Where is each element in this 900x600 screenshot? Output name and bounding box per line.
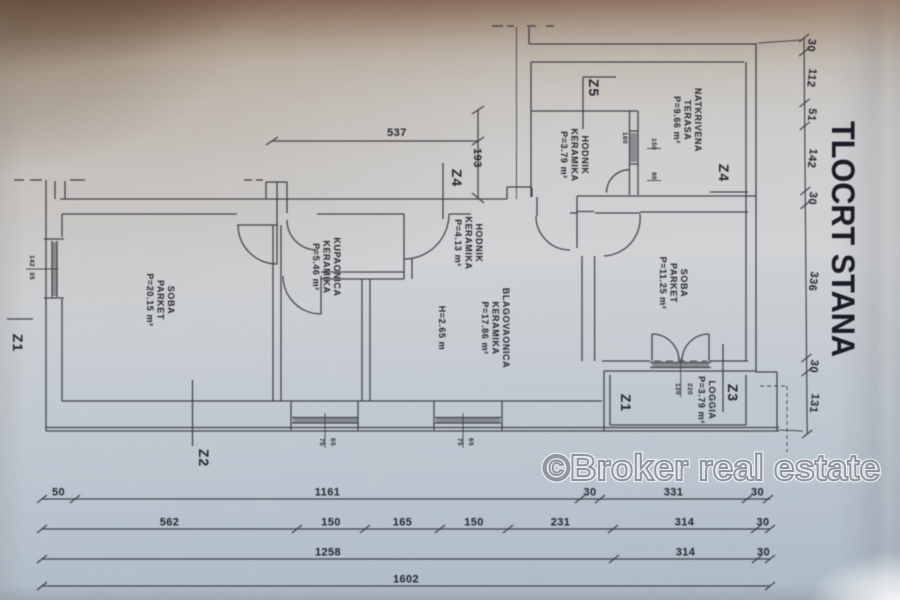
svg-text:Z1: Z1 xyxy=(10,334,26,352)
svg-text:KUPAONICA: KUPAONICA xyxy=(332,237,342,296)
svg-text:Z4: Z4 xyxy=(716,164,732,182)
svg-text:P=20.15 m²: P=20.15 m² xyxy=(145,273,155,326)
svg-text:75: 75 xyxy=(318,438,325,446)
svg-text:193: 193 xyxy=(471,148,483,168)
svg-text:Z3: Z3 xyxy=(725,384,741,402)
svg-text:165: 165 xyxy=(393,517,413,529)
svg-text:65: 65 xyxy=(467,438,474,446)
svg-text:TERASA: TERASA xyxy=(683,100,693,141)
svg-text:231: 231 xyxy=(551,517,571,529)
svg-text:65: 65 xyxy=(329,438,336,446)
svg-text:336: 336 xyxy=(806,271,820,292)
svg-text:51: 51 xyxy=(805,108,819,123)
svg-text:SOBA: SOBA xyxy=(679,269,689,297)
svg-text:120: 120 xyxy=(674,383,681,395)
svg-text:142: 142 xyxy=(805,148,819,169)
svg-text:TLOCRT STANA: TLOCRT STANA xyxy=(825,121,861,357)
svg-text:30: 30 xyxy=(751,487,764,499)
svg-text:Z2: Z2 xyxy=(196,449,212,467)
svg-text:P=5.46 m²: P=5.46 m² xyxy=(311,243,321,291)
svg-text:1602: 1602 xyxy=(393,574,419,586)
svg-text:P=3.79 m²: P=3.79 m² xyxy=(559,131,569,179)
svg-text:562: 562 xyxy=(160,517,180,529)
svg-text:PARKET: PARKET xyxy=(156,280,166,320)
svg-text:331: 331 xyxy=(664,487,684,499)
svg-text:KERAMIKA: KERAMIKA xyxy=(464,216,474,269)
svg-text:P=3.79 m²: P=3.79 m² xyxy=(697,376,707,424)
svg-text:131: 131 xyxy=(807,393,821,414)
svg-text:HODNIK: HODNIK xyxy=(580,135,590,174)
svg-text:75: 75 xyxy=(456,438,463,446)
svg-text:30: 30 xyxy=(583,487,596,499)
svg-text:BLAGOVAONICA: BLAGOVAONICA xyxy=(501,288,511,369)
svg-text:Z1: Z1 xyxy=(618,394,634,412)
svg-text:KERAMIKA: KERAMIKA xyxy=(322,240,332,293)
svg-text:150: 150 xyxy=(464,517,484,529)
svg-text:112: 112 xyxy=(804,68,818,89)
svg-text:30: 30 xyxy=(804,38,818,53)
svg-text:KERAMIKA: KERAMIKA xyxy=(570,128,580,181)
svg-text:Z5: Z5 xyxy=(586,79,602,97)
svg-text:314: 314 xyxy=(675,517,695,529)
svg-text:P=9.66 m²: P=9.66 m² xyxy=(672,96,682,144)
svg-text:SOBA: SOBA xyxy=(166,286,176,314)
svg-text:537: 537 xyxy=(387,127,407,139)
svg-text:150: 150 xyxy=(650,138,657,150)
svg-text:NATKRIVENA: NATKRIVENA xyxy=(693,88,703,152)
svg-text:90: 90 xyxy=(650,172,657,180)
svg-text:30: 30 xyxy=(807,359,821,374)
svg-text:Z4: Z4 xyxy=(449,169,465,187)
svg-text:142: 142 xyxy=(28,255,35,267)
svg-text:LOGGIA: LOGGIA xyxy=(707,380,717,419)
svg-text:314: 314 xyxy=(676,547,696,559)
svg-text:KERAMIKA: KERAMIKA xyxy=(491,301,501,354)
svg-text:P=11.25 m²: P=11.25 m² xyxy=(658,257,668,310)
svg-text:P=4.13 m²: P=4.13 m² xyxy=(453,219,463,267)
svg-text:35: 35 xyxy=(28,272,35,280)
svg-text:160: 160 xyxy=(621,132,628,144)
svg-text:HODNIK: HODNIK xyxy=(474,223,484,262)
svg-text:220: 220 xyxy=(686,383,693,395)
svg-text:©Broker real estate: ©Broker real estate xyxy=(543,447,880,488)
svg-text:PARKET: PARKET xyxy=(669,263,679,303)
svg-text:30: 30 xyxy=(805,191,819,206)
svg-text:30: 30 xyxy=(756,517,769,529)
svg-text:30: 30 xyxy=(757,547,770,559)
svg-text:150: 150 xyxy=(321,517,341,529)
svg-text:1161: 1161 xyxy=(315,487,340,499)
svg-text:1258: 1258 xyxy=(315,547,341,559)
svg-text:P=17.86 m²: P=17.86 m² xyxy=(480,301,490,354)
svg-text:50: 50 xyxy=(52,487,65,499)
svg-text:H=2.65 m: H=2.65 m xyxy=(437,306,447,351)
